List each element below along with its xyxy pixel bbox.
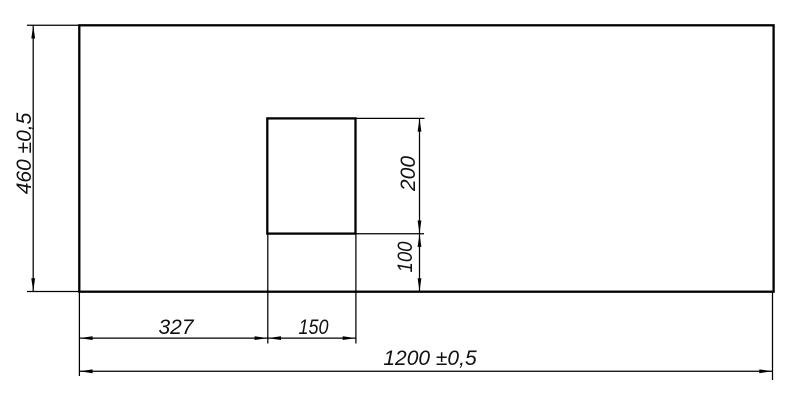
- svg-text:327: 327: [158, 316, 194, 339]
- svg-text:150: 150: [299, 316, 329, 339]
- svg-text:100: 100: [394, 241, 417, 272]
- svg-text:200: 200: [397, 156, 420, 192]
- svg-text:460 ±0,5: 460 ±0,5: [13, 112, 36, 194]
- svg-text:1200 ±0,5: 1200 ±0,5: [383, 347, 477, 370]
